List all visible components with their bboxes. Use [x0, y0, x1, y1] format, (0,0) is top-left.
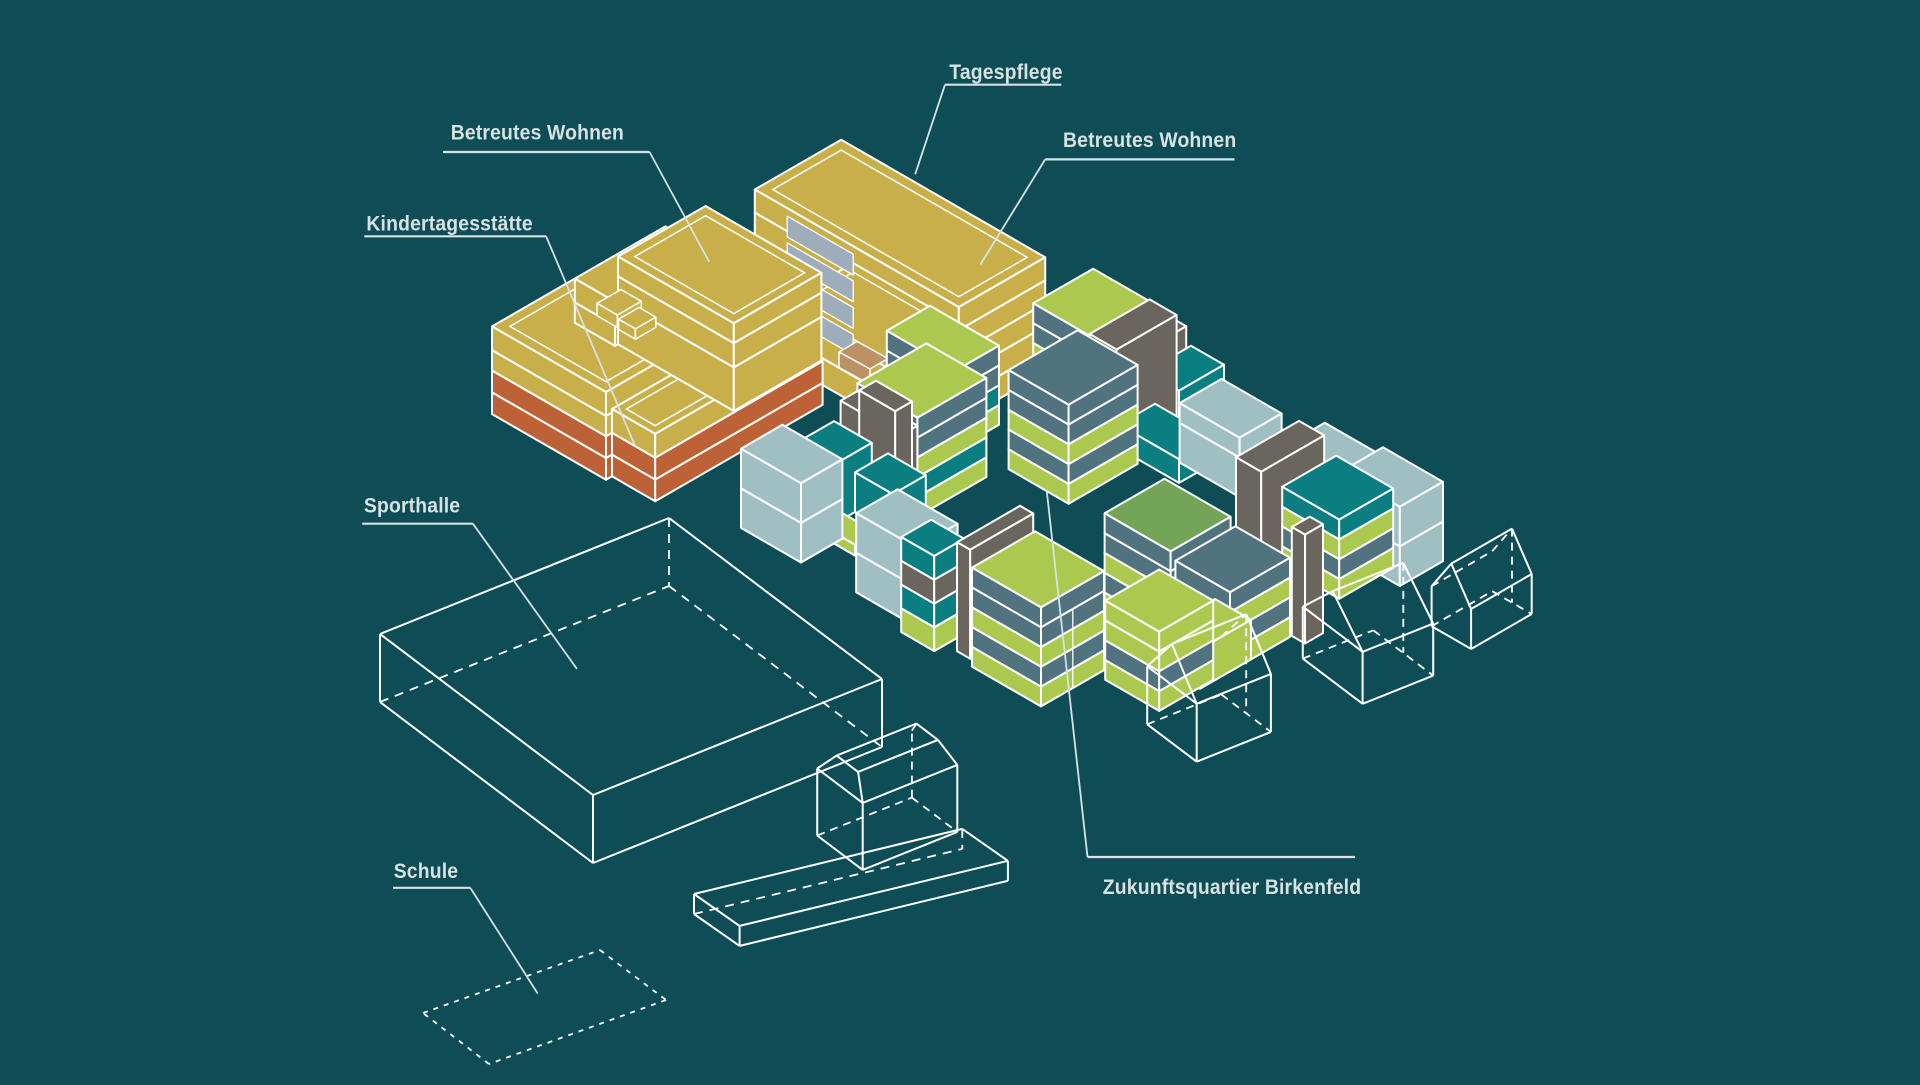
svg-text:Kindertagesstätte: Kindertagesstätte	[366, 212, 532, 236]
svg-text:Betreutes Wohnen: Betreutes Wohnen	[451, 121, 624, 145]
svg-text:Tagespflege: Tagespflege	[949, 60, 1062, 84]
svg-text:Betreutes Wohnen: Betreutes Wohnen	[1063, 128, 1236, 152]
svg-text:Zukunftsquartier Birkenfeld: Zukunftsquartier Birkenfeld	[1103, 875, 1361, 899]
svg-text:Sporthalle: Sporthalle	[364, 493, 460, 517]
svg-text:Schule: Schule	[394, 859, 458, 883]
